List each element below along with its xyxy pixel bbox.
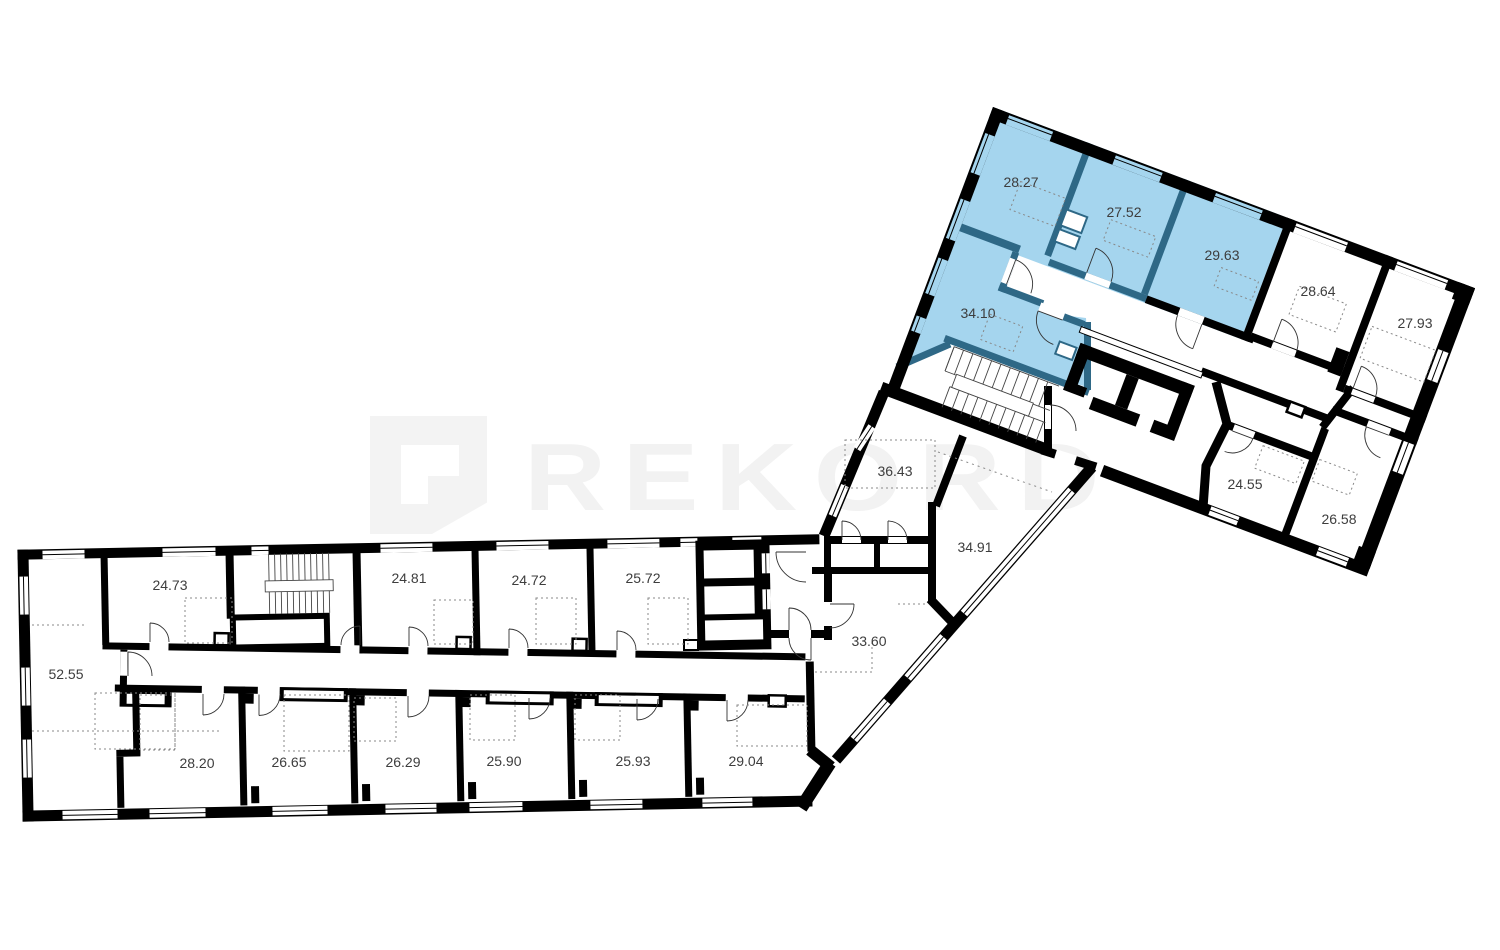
svg-text:28.64: 28.64 [1300, 283, 1335, 299]
svg-text:36.43: 36.43 [877, 463, 912, 479]
svg-text:28.20: 28.20 [179, 755, 214, 771]
svg-text:25.72: 25.72 [625, 570, 660, 586]
svg-text:26.58: 26.58 [1321, 511, 1356, 527]
svg-text:29.04: 29.04 [728, 753, 763, 769]
svg-text:24.81: 24.81 [391, 570, 426, 586]
svg-text:25.90: 25.90 [486, 753, 521, 769]
svg-text:26.65: 26.65 [271, 754, 306, 770]
svg-text:28.27: 28.27 [1003, 174, 1038, 190]
svg-text:29.63: 29.63 [1204, 247, 1239, 263]
svg-text:24.55: 24.55 [1227, 476, 1262, 492]
svg-text:26.29: 26.29 [385, 754, 420, 770]
svg-text:25.93: 25.93 [615, 753, 650, 769]
svg-text:33.60: 33.60 [851, 633, 886, 649]
svg-text:27.52: 27.52 [1106, 204, 1141, 220]
svg-text:24.72: 24.72 [511, 572, 546, 588]
svg-text:34.10: 34.10 [960, 305, 995, 321]
svg-text:34.91: 34.91 [957, 539, 992, 555]
svg-text:52.55: 52.55 [48, 666, 83, 682]
svg-text:24.73: 24.73 [152, 577, 187, 593]
svg-text:27.93: 27.93 [1397, 315, 1432, 331]
